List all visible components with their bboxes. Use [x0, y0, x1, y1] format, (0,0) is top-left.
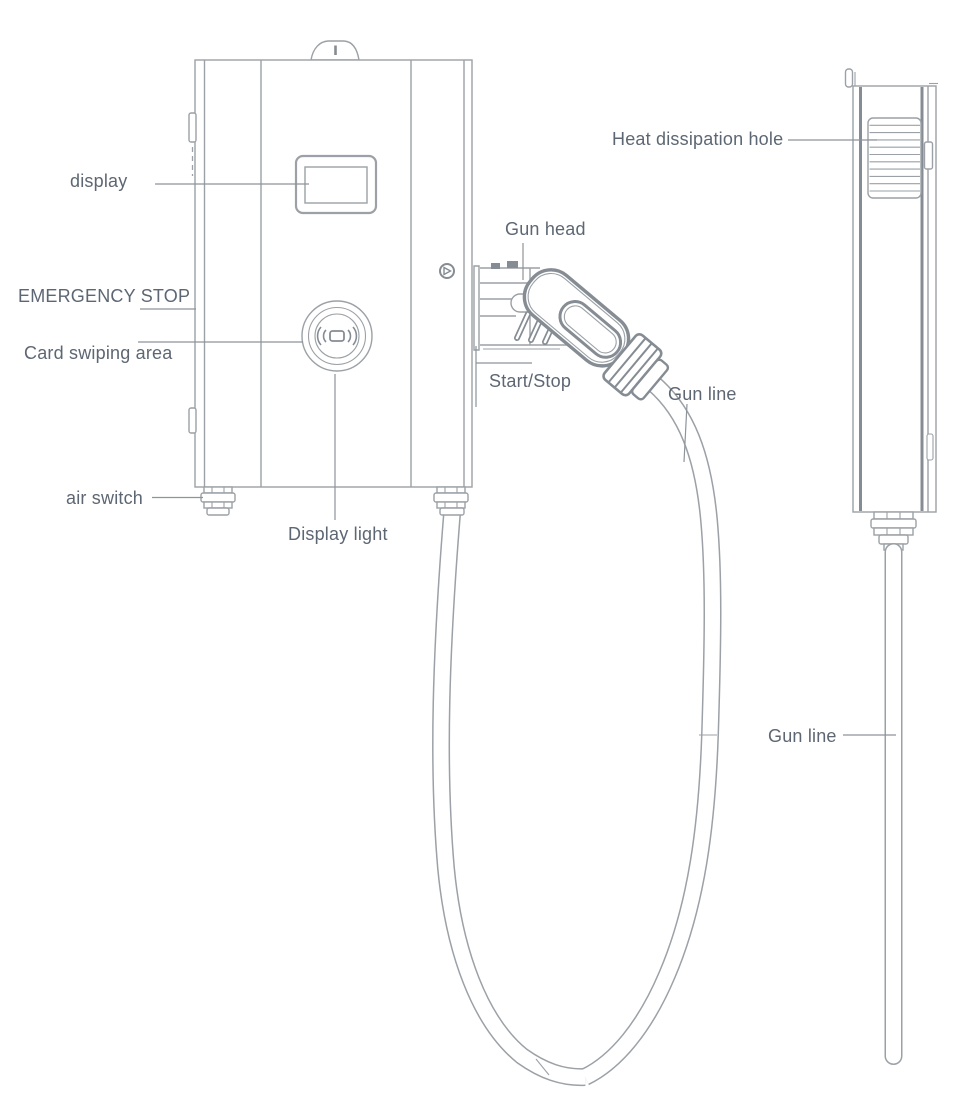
side-button: [925, 142, 933, 169]
dock-lug: [491, 263, 500, 269]
mount-hook: [846, 69, 856, 87]
side-hinge-tab: [189, 113, 196, 142]
side-view-body: [846, 69, 939, 1056]
label-gun-head: Gun head: [505, 219, 586, 240]
label-emergency-stop: EMERGENCY STOP: [18, 286, 190, 307]
charger-annotated-diagram: display EMERGENCY STOP Card swiping area…: [0, 0, 980, 1115]
air-switch-gland: [201, 487, 235, 515]
dock-lug: [507, 261, 518, 268]
label-display-light: Display light: [288, 524, 388, 545]
label-start-stop: Start/Stop: [489, 371, 571, 392]
label-air-switch: air switch: [66, 488, 143, 509]
cabinet-outline: [195, 60, 472, 487]
heat-dissipation-grille: [868, 118, 921, 198]
side-latch-mark: [927, 434, 933, 460]
label-gun-line-front: Gun line: [668, 384, 737, 405]
diagram-line-art: [0, 0, 980, 1115]
gun-cable-loop: [441, 384, 717, 1077]
label-gun-line-side: Gun line: [768, 726, 837, 747]
label-heat-dissipation-hole: Heat dissipation hole: [612, 129, 783, 150]
side-hinge-tab: [189, 408, 196, 433]
label-card-swiping-area: Card swiping area: [24, 343, 172, 364]
front-view-body: [189, 41, 472, 515]
cable-gland-front: [434, 487, 468, 515]
label-display: display: [70, 171, 127, 192]
